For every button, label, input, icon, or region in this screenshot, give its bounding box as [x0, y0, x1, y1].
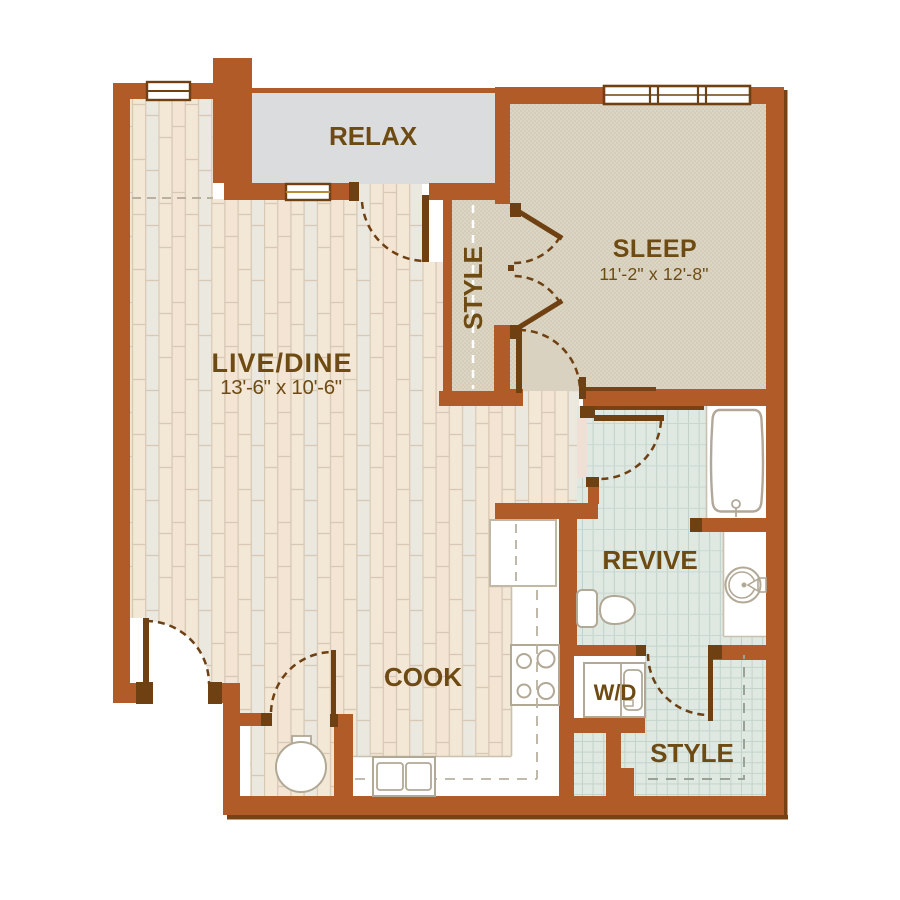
svg-text:STYLE: STYLE — [650, 738, 734, 768]
svg-text:11'-2" x 12'-8": 11'-2" x 12'-8" — [599, 264, 708, 284]
svg-text:RELAX: RELAX — [329, 121, 418, 151]
svg-text:SLEEP: SLEEP — [613, 235, 697, 263]
svg-text:W/D: W/D — [594, 680, 637, 705]
svg-text:STYLE: STYLE — [458, 246, 488, 330]
svg-text:REVIVE: REVIVE — [602, 545, 697, 575]
svg-text:13'-6" x 10'-6": 13'-6" x 10'-6" — [220, 376, 342, 399]
svg-text:LIVE/DINE: LIVE/DINE — [211, 348, 352, 378]
svg-text:COOK: COOK — [384, 662, 462, 692]
